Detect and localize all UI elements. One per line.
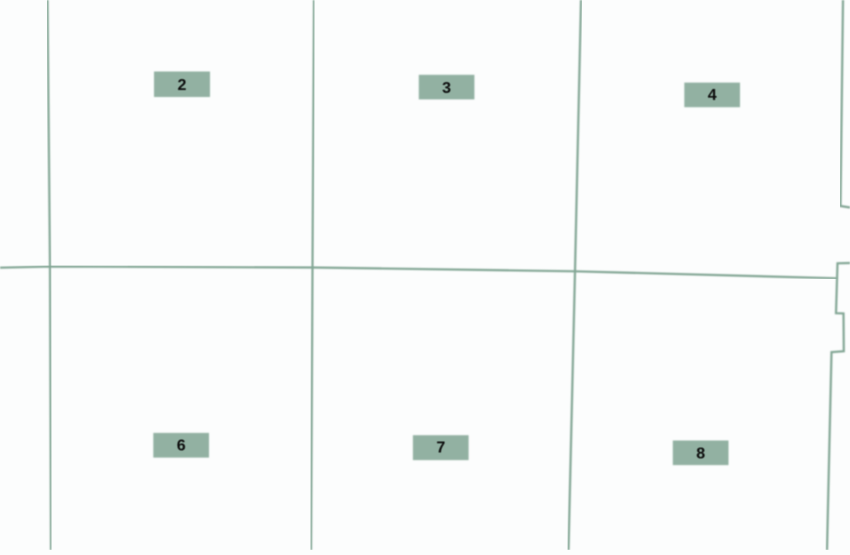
svg-text:6: 6 <box>177 438 186 455</box>
svg-text:7: 7 <box>436 439 445 456</box>
svg-text:4: 4 <box>708 87 717 104</box>
svg-text:3: 3 <box>442 80 451 97</box>
svg-text:2: 2 <box>178 77 187 94</box>
svg-text:8: 8 <box>696 446 705 463</box>
